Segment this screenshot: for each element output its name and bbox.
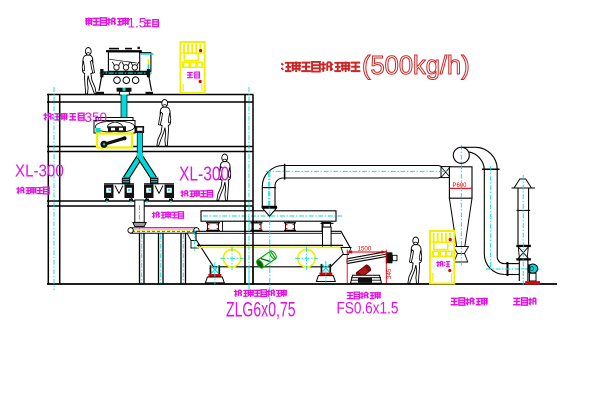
svg-text:1500: 1500 — [358, 246, 372, 253]
svg-text:XL-300: XL-300 — [15, 160, 64, 181]
svg-text:FS0.6x1.5: FS0.6x1.5 — [337, 299, 399, 318]
svg-text:345: 345 — [386, 268, 393, 279]
svg-text:XL-300: XL-300 — [179, 162, 229, 185]
svg-text:P600: P600 — [453, 183, 468, 189]
svg-text:ZLG6x0,75: ZLG6x0,75 — [226, 298, 296, 321]
svg-text:350: 350 — [85, 110, 108, 125]
svg-text:(500kg/h): (500kg/h) — [362, 52, 470, 80]
svg-text:1.5: 1.5 — [128, 15, 147, 30]
